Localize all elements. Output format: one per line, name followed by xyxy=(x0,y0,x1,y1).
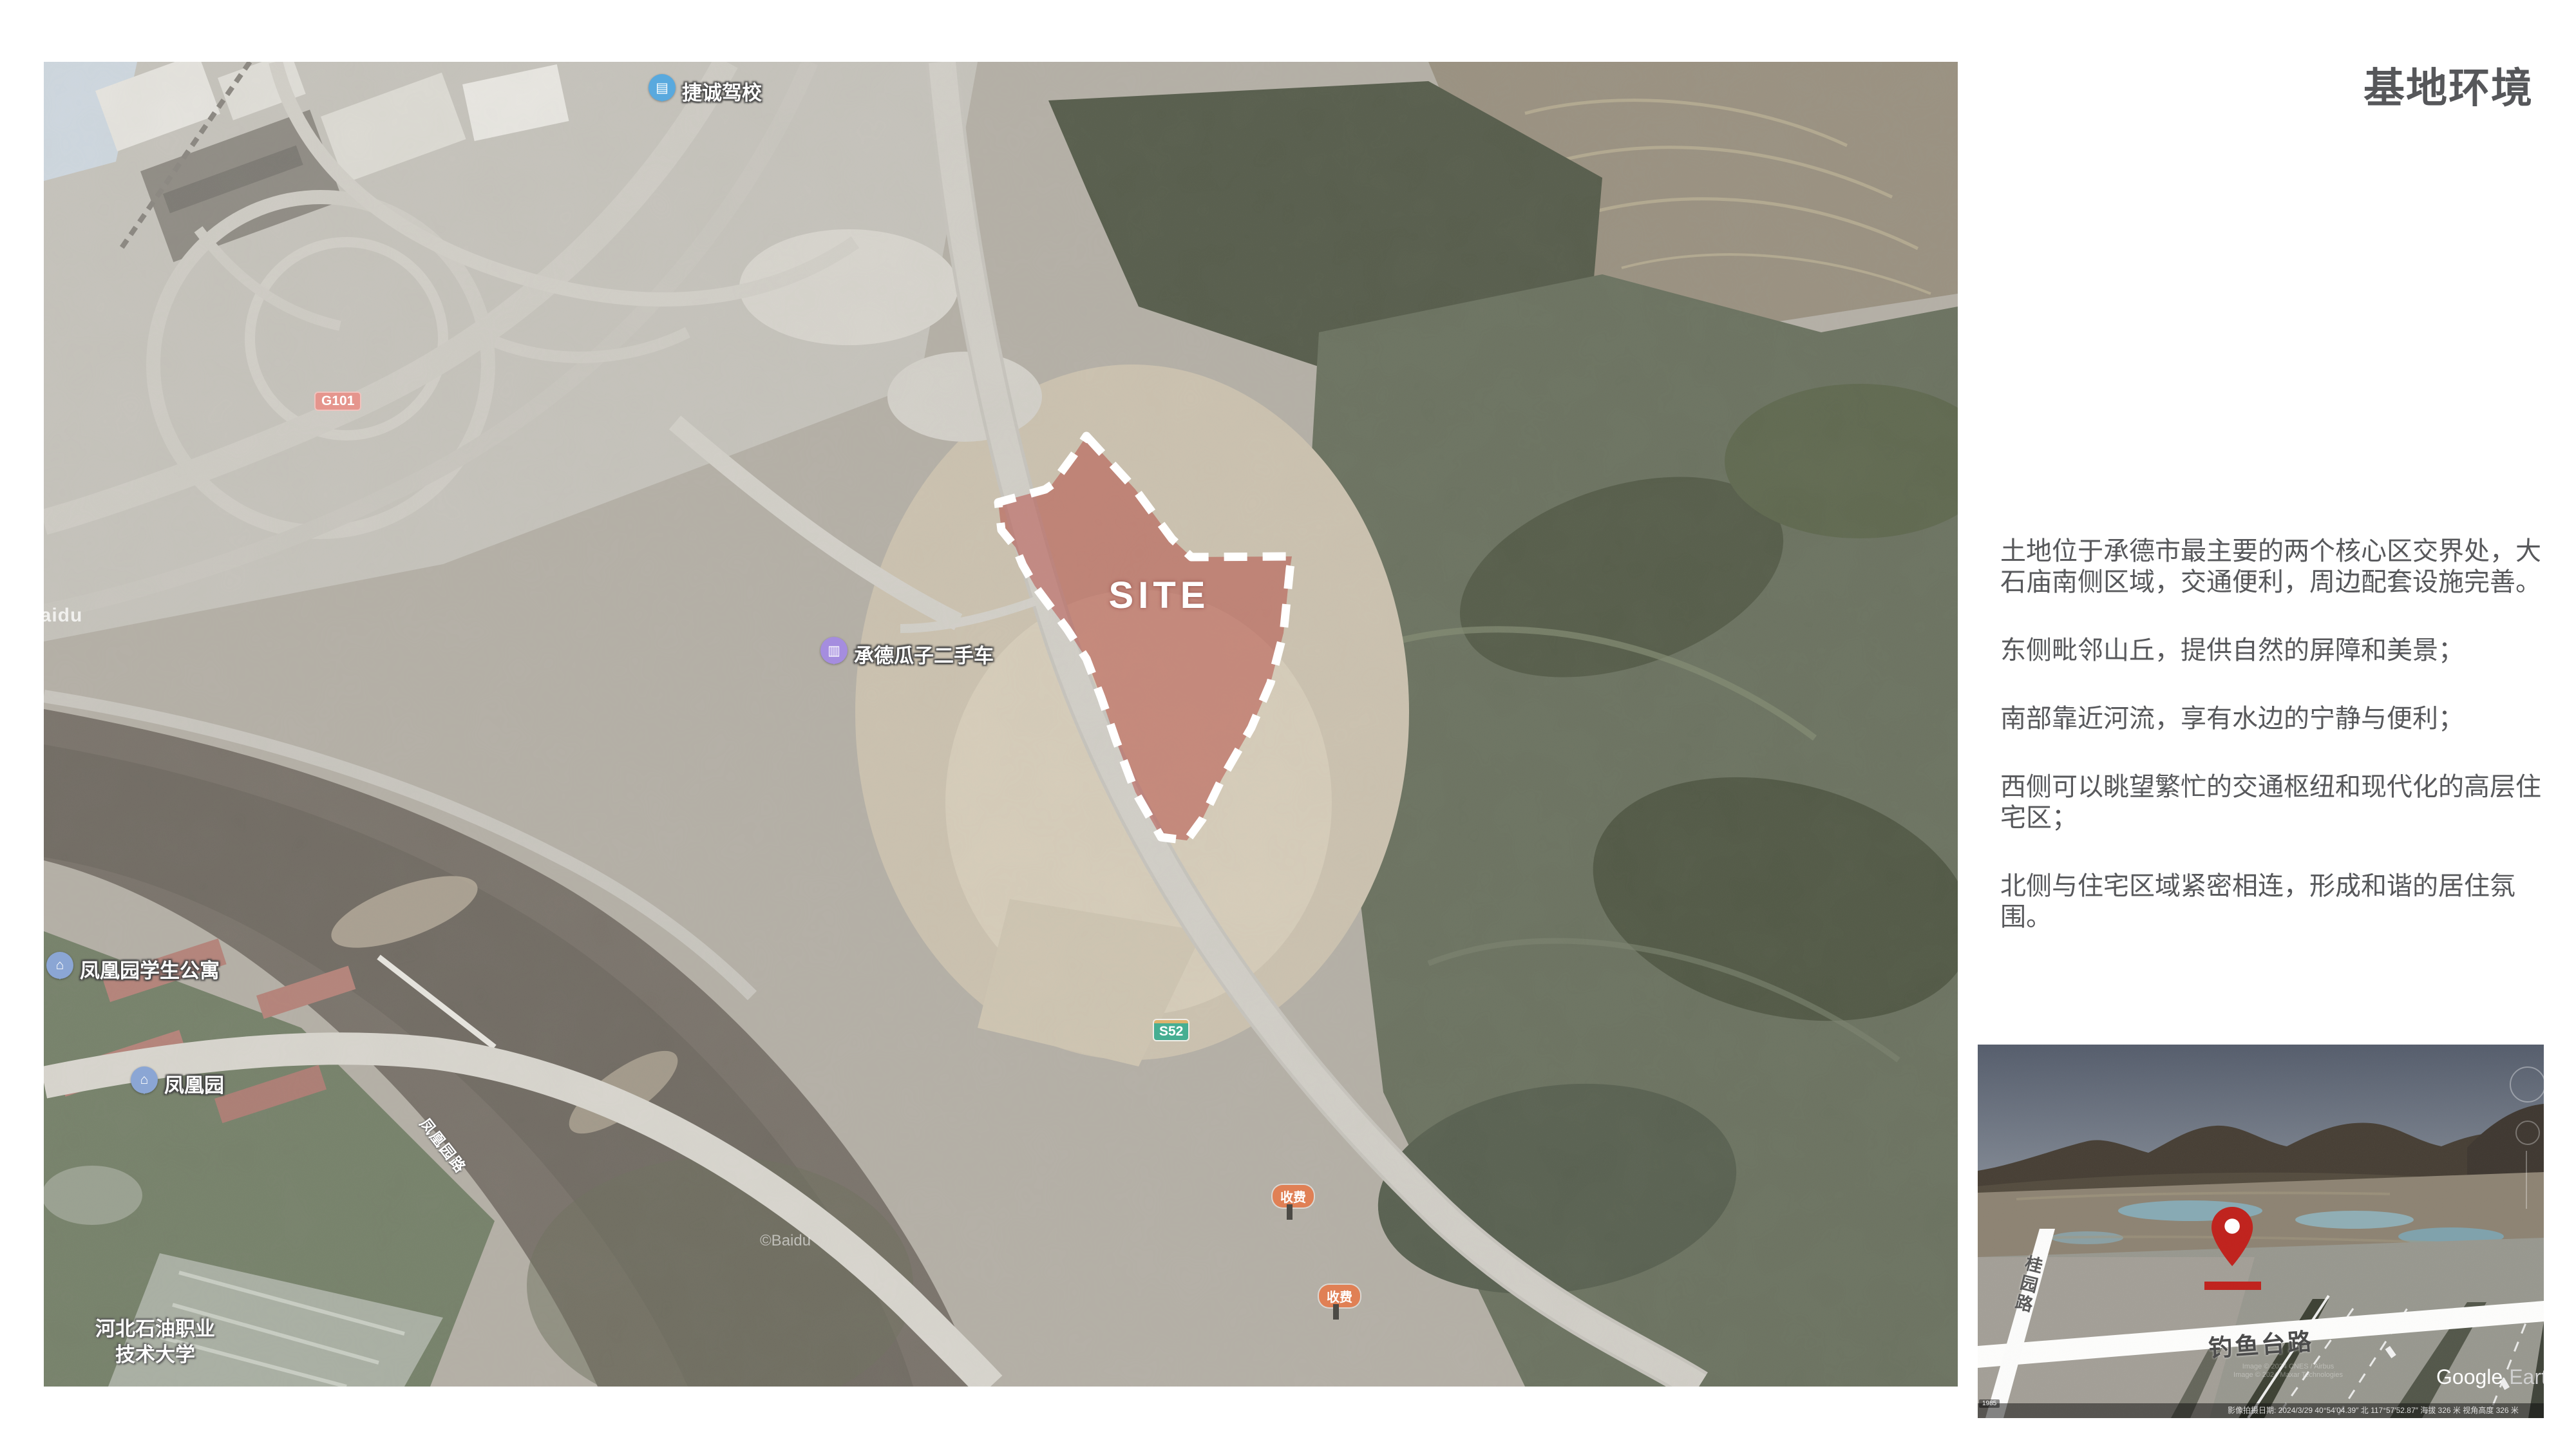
toll-badge-1-label: 收费 xyxy=(1280,1191,1306,1205)
toll-badge-2-stem xyxy=(1333,1304,1339,1320)
site-label: SITE xyxy=(1056,574,1262,617)
description-paragraph-2: 东侧毗邻山丘，提供自然的屏障和美景； xyxy=(2000,635,2543,666)
page-title: 基地环境 xyxy=(2363,55,2533,115)
poi-phoenix-garden-label: 凤凰园 xyxy=(164,1069,224,1098)
poi-driving-school-label: 捷诚驾校 xyxy=(682,77,762,106)
description-paragraph-5: 北侧与住宅区域紧密相连，形成和谐的居住氛围。 xyxy=(2000,871,2543,933)
baidu-copyright-watermark: ©Baidu xyxy=(760,1232,811,1250)
driving-school-pin-icon: ▤ xyxy=(649,74,676,101)
inset-status-bar: 影像拍摄日期: 2024/3/29 40°54′04.39″ 北 117°57′… xyxy=(1978,1403,2544,1418)
google-watermark-text: Google xyxy=(2436,1365,2503,1388)
poi-phoenix-garden: ⌂ 凤凰园 xyxy=(131,1066,224,1098)
description-paragraph-3: 南部靠近河流，享有水边的宁静与便利； xyxy=(2000,703,2543,734)
inset-road-horizontal-label: 钓鱼台路 xyxy=(2207,1321,2315,1363)
toll-badge-1-stem xyxy=(1287,1204,1293,1220)
toll-badge-2-label: 收费 xyxy=(1327,1291,1352,1305)
student-apartment-pin-icon: ⌂ xyxy=(46,952,73,979)
road-badge-s52: S52 xyxy=(1154,1020,1188,1040)
description-paragraph-1: 土地位于承德市最主要的两个核心区交界处，大石庙南侧区域，交通便利，周边配套设施完… xyxy=(2000,536,2543,598)
satellite-map-art xyxy=(44,62,1958,1387)
credit-line-2: Image © 2024 Maxar Technologies xyxy=(2217,1371,2359,1379)
poi-student-apartment: ⌂ 凤凰园学生公寓 xyxy=(46,952,220,983)
move-joystick-icon xyxy=(2515,1121,2540,1145)
google-earth-inset: 钓鱼台路 桂园路 GoogleEarth Image © 2024 CNES /… xyxy=(1978,1045,2544,1418)
inset-art xyxy=(1978,1045,2544,1418)
credit-line-1: Image © 2024 CNES / Airbus xyxy=(2217,1363,2359,1371)
poi-used-car-label: 承德瓜子二手车 xyxy=(854,639,994,668)
site-description: 土地位于承德市最主要的两个核心区交界处，大石庙南侧区域，交通便利，周边配套设施完… xyxy=(2000,536,2543,970)
poi-driving-school: ▤ 捷诚驾校 xyxy=(649,74,762,106)
earth-watermark-text: Earth xyxy=(2509,1365,2544,1388)
satellite-map: ▤ 捷诚驾校 ▥ 承德瓜子二手车 ⌂ 凤凰园学生公寓 ⌂ 凤凰园 河北石油职业 … xyxy=(44,62,1958,1387)
phoenix-garden-pin-icon: ⌂ xyxy=(131,1066,158,1094)
zoom-slider xyxy=(2526,1151,2527,1209)
google-earth-watermark: GoogleEarth xyxy=(2436,1365,2544,1389)
look-joystick-icon xyxy=(2510,1066,2544,1103)
university-label-line1: 河北石油职业 xyxy=(55,1316,255,1342)
road-badge-g101: G101 xyxy=(314,392,361,411)
poi-student-apartment-label: 凤凰园学生公寓 xyxy=(80,954,220,983)
description-paragraph-4: 西侧可以眺望繁忙的交通枢纽和现代化的高层住宅区； xyxy=(2000,772,2543,833)
inset-year-chip: 1985 xyxy=(1979,1399,2000,1408)
toll-badge-2: 收费 xyxy=(1319,1285,1360,1307)
poi-university: 河北石油职业 技术大学 xyxy=(55,1316,255,1368)
imagery-credits: Image © 2024 CNES / Airbus Image © 2024 … xyxy=(2217,1363,2359,1379)
toll-badge-1: 收费 xyxy=(1273,1185,1314,1207)
poi-used-car-dealer: ▥ 承德瓜子二手车 xyxy=(820,637,994,668)
used-car-pin-icon: ▥ xyxy=(820,637,848,664)
baidu-watermark: Baidu xyxy=(44,605,82,627)
university-label-line2: 技术大学 xyxy=(55,1342,255,1368)
